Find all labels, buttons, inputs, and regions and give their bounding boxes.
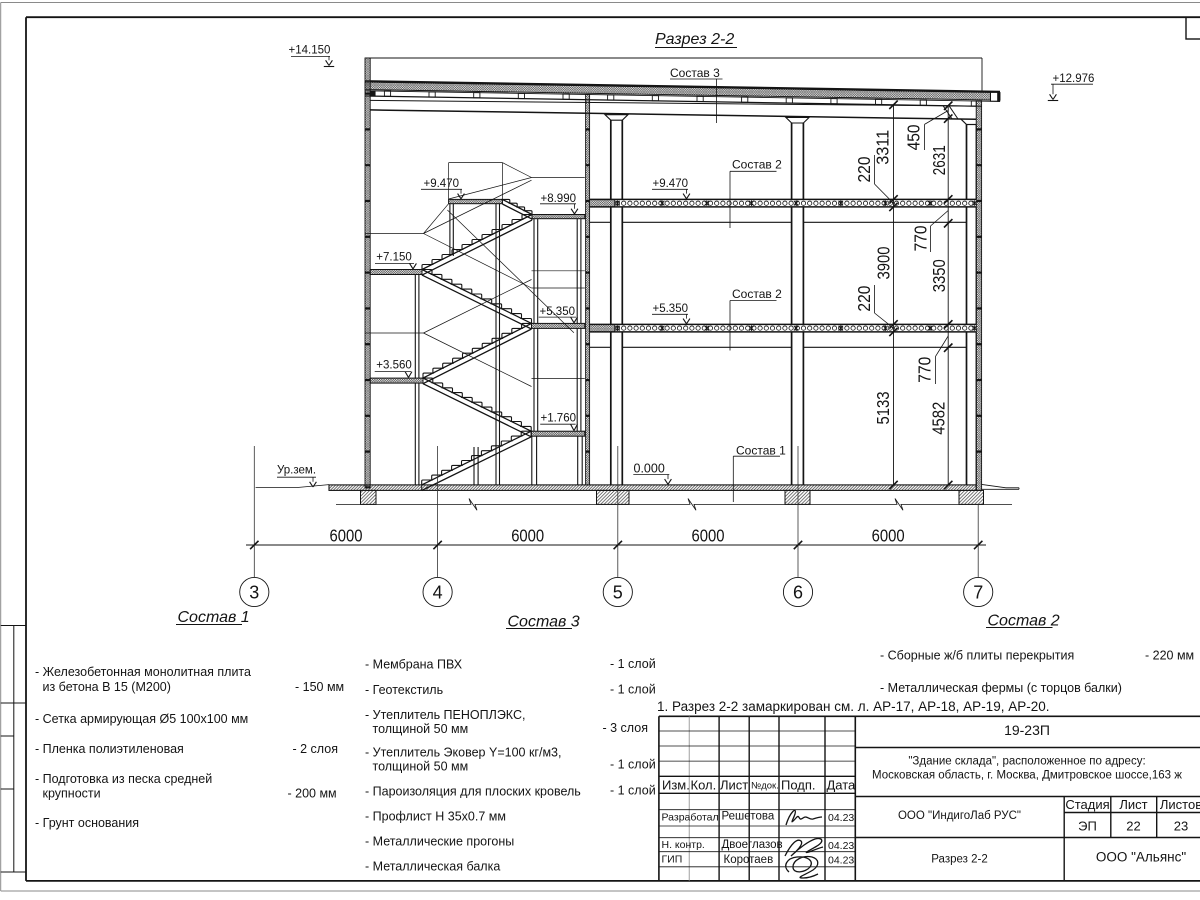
svg-text:3900: 3900 [874,247,894,280]
svg-text:толщиной 50 мм: толщиной 50 мм [373,722,469,736]
svg-text:04.23: 04.23 [828,840,854,852]
svg-text:ГИП: ГИП [662,854,683,866]
svg-text:0.000: 0.000 [634,462,665,476]
svg-text:- 200 мм: - 200 мм [288,787,337,801]
svg-text:Листов: Листов [1160,797,1200,812]
svg-text:- Пароизоляция для плоских кро: - Пароизоляция для плоских кровель [365,785,581,799]
svg-text:- 2 слоя: - 2 слоя [293,742,338,756]
svg-text:Состав 3: Состав 3 [670,66,720,80]
svg-text:- Мембрана ПВХ: - Мембрана ПВХ [365,658,463,672]
svg-text:- 1 слой: - 1 слой [610,784,656,798]
svg-text:Разработал: Разработал [662,812,719,824]
svg-text:- 1 слой: - 1 слой [610,683,656,697]
svg-text:- Грунт основания: - Грунт основания [35,816,139,830]
svg-text:- Утеплитель Эковер Y=100 кг/м: - Утеплитель Эковер Y=100 кг/м3, [365,746,561,760]
svg-text:6000: 6000 [511,526,544,546]
svg-text:7: 7 [973,583,983,603]
svg-text:3350: 3350 [929,259,949,292]
svg-text:Двоеглазов: Двоеглазов [722,839,783,851]
svg-text:+7.150: +7.150 [376,252,412,264]
svg-text:- 1 слой: - 1 слой [610,657,656,671]
svg-text:№док.: №док. [751,781,779,792]
svg-text:крупности: крупности [43,787,101,801]
svg-text:- Железобетонная монолитная п: - Железобетонная монолитная плита [35,665,251,679]
svg-text:+14.150: +14.150 [289,45,331,57]
svg-text:5133: 5133 [873,392,893,425]
svg-text:- 1 слой: - 1 слой [610,758,656,772]
svg-text:+9.470: +9.470 [653,178,689,190]
svg-text:Состав 1: Состав 1 [736,443,786,457]
svg-text:- Геотекстиль: - Геотекстиль [365,683,443,697]
svg-text:770: 770 [915,357,935,383]
svg-text:Ур.зем.: Ур.зем. [277,465,316,477]
svg-text:Состав 3: Состав 3 [508,614,580,631]
svg-text:220: 220 [854,157,874,183]
svg-text:Московская область, г. Москва,: Московская область, г. Москва, Дмитровск… [872,770,1182,782]
svg-text:ООО "ИндигоЛаб РУС": ООО "ИндигоЛаб РУС" [898,810,1021,822]
svg-text:+8.990: +8.990 [541,193,577,205]
svg-text:+5.350: +5.350 [653,303,689,315]
svg-text:2631: 2631 [929,145,949,175]
svg-text:220: 220 [854,286,874,312]
svg-text:Состав 2: Состав 2 [988,613,1060,630]
svg-text:04.23: 04.23 [828,812,854,824]
svg-text:- Сетка армирующая Ø5 100х100: - Сетка армирующая Ø5 100х100 мм [35,712,248,726]
svg-text:- 220 мм: - 220 мм [1145,649,1194,663]
svg-text:Н. контр.: Н. контр. [662,839,705,851]
svg-text:- Утеплитель ПЕНОПЛЭКС,: - Утеплитель ПЕНОПЛЭКС, [365,708,525,722]
svg-text:3: 3 [249,583,259,603]
svg-text:1. Разрез 2-2 замаркирован см.: 1. Разрез 2-2 замаркирован см. л. АР-17,… [657,699,1049,714]
svg-text:Состав 2: Состав 2 [732,158,782,172]
svg-text:Состав 1: Состав 1 [178,609,250,626]
svg-text:+5.350: +5.350 [540,306,576,318]
svg-text:22: 22 [1126,819,1140,834]
svg-text:+1.760: +1.760 [541,413,577,425]
svg-text:Разрез 2-2: Разрез 2-2 [931,854,987,866]
svg-text:- Металлические прогоны: - Металлические прогоны [365,835,514,849]
svg-text:Подп.: Подп. [781,778,816,793]
svg-text:Коротаев: Коротаев [724,854,774,866]
svg-text:ООО "Альянс": ООО "Альянс" [1096,850,1186,865]
svg-text:6000: 6000 [692,526,725,546]
svg-text:- Подготовка из песка средней: - Подготовка из песка средней [35,772,212,786]
svg-text:Лист: Лист [1119,797,1147,812]
svg-text:Лист: Лист [720,778,748,793]
svg-text:- Металлическая балка: - Металлическая балка [365,860,500,874]
svg-text:Решетова: Решетова [722,811,775,823]
svg-text:- 150 мм: - 150 мм [295,680,344,694]
svg-text:23: 23 [1174,819,1188,834]
svg-text:+9.470: +9.470 [424,178,460,190]
svg-text:4: 4 [433,583,443,603]
svg-text:+12.976: +12.976 [1053,73,1095,85]
svg-text:04.23: 04.23 [828,855,854,867]
svg-text:Состав 2: Состав 2 [732,287,782,301]
svg-text:Дата: Дата [827,778,857,793]
svg-text:450: 450 [904,124,924,150]
svg-text:4582: 4582 [929,402,949,435]
svg-text:- 3 слоя: - 3 слоя [603,721,648,735]
svg-text:770: 770 [911,225,931,251]
svg-text:19-23П: 19-23П [1004,722,1050,738]
svg-text:+3.560: +3.560 [376,360,412,372]
svg-text:5: 5 [613,583,623,603]
svg-text:Разрез 2-2: Разрез 2-2 [655,31,734,48]
svg-text:6: 6 [793,583,803,603]
svg-text:Изм.: Изм. [662,778,690,793]
svg-text:6000: 6000 [872,526,905,546]
svg-text:из бетона В 15 (М200): из бетона В 15 (М200) [43,680,171,694]
svg-text:Стадия: Стадия [1065,797,1109,812]
svg-text:Кол.: Кол. [691,778,717,793]
svg-text:- Пленка полиэтиленовая: - Пленка полиэтиленовая [35,742,184,756]
svg-text:толщиной 50 мм: толщиной 50 мм [373,760,469,774]
svg-text:ЭП: ЭП [1078,819,1097,834]
svg-text:"Здание склада", расположенное: "Здание склада", расположенное по адресу… [908,756,1145,768]
svg-text:3311: 3311 [873,130,893,165]
svg-text:- Профлист Н 35х0.7 мм: - Профлист Н 35х0.7 мм [365,810,506,824]
svg-text:- Сборные ж/б плиты перекрытия: - Сборные ж/б плиты перекрытия [880,649,1074,663]
svg-text:6000: 6000 [330,526,363,546]
svg-text:- Металлическая фермы (с торцо: - Металлическая фермы (с торцов балки) [880,681,1122,695]
